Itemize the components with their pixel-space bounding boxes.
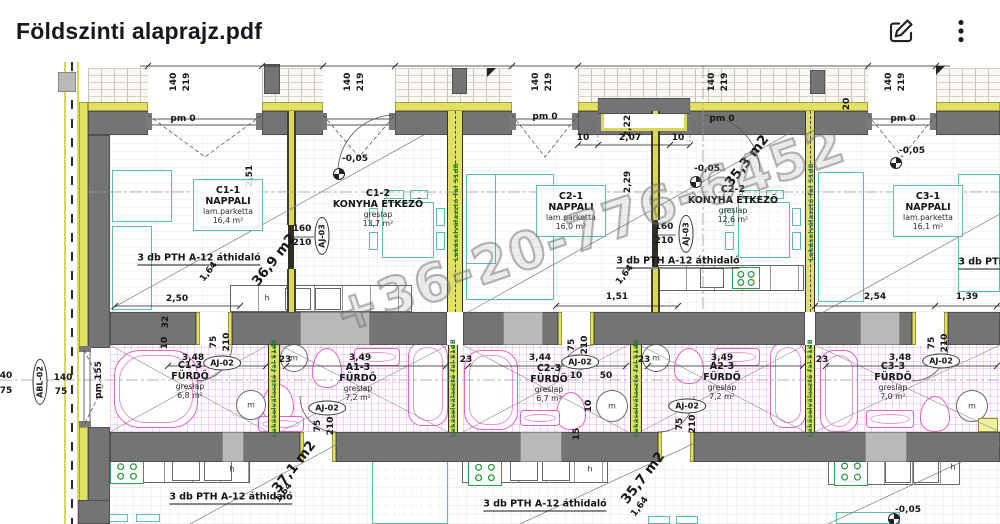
annotation-text: 2,07 xyxy=(619,133,641,143)
annotation-text: 160 xyxy=(655,222,674,232)
annotation-text: m xyxy=(652,354,660,363)
separating-wall-label: Lakáselválasztó fal 51dB xyxy=(806,339,814,437)
annotation-text: 140 xyxy=(343,73,353,92)
r-area: 12,6 m² xyxy=(688,215,778,224)
annotation-text: 10 xyxy=(570,371,583,381)
annotation-text: pm 0 xyxy=(532,112,557,122)
annotation-text: AJ-02 xyxy=(203,356,241,371)
r-id: C1-1 xyxy=(203,185,253,196)
level-marker-icon xyxy=(333,168,345,180)
annotation-text: 210 xyxy=(326,417,336,436)
annotation-text: 140 xyxy=(531,73,541,92)
annotation-text: h xyxy=(950,463,955,472)
more-options-button[interactable] xyxy=(944,12,978,50)
annotation-text: 2,54 xyxy=(864,292,886,302)
annotation-text: 50 xyxy=(600,371,613,381)
annotation-text: 10 xyxy=(577,133,590,143)
pdf-viewer-window: Földszinti alaprajz.pdf xyxy=(0,0,1000,524)
annotation-text: 219 xyxy=(544,73,554,92)
r-floor: lam.parketta xyxy=(903,213,953,222)
lintel-label: 3 db PTH A-12 áthidaló xyxy=(616,256,739,269)
room-label-c2-3: C2-3FÜRDŐgreslap6,7 m² xyxy=(530,363,567,403)
room-label-c1-1: C1-1NAPPALIlam.parketta16,4 m² xyxy=(193,179,263,231)
r-id: C1-2 xyxy=(333,188,423,199)
annotation-text: AJ-02 xyxy=(922,354,960,369)
annotation-text: 219 xyxy=(182,73,192,92)
annotation-text: 2,50 xyxy=(166,294,188,304)
annotation-text: 10 xyxy=(672,133,685,143)
annotation-text: 140 xyxy=(169,73,179,92)
r-floor: greslap xyxy=(333,210,423,219)
edit-button[interactable] xyxy=(882,12,920,50)
r-name: FÜRDŐ xyxy=(171,371,208,382)
annotation-text: 75 xyxy=(313,420,323,433)
room-label-c2-1: C2-1NAPPALIlam.parketta16,0 m² xyxy=(536,185,606,237)
r-floor: greslap xyxy=(339,384,376,393)
r-area: 6,7 m² xyxy=(530,394,567,403)
annotation-text: pm 0 xyxy=(170,114,195,124)
r-area: 16,1 m² xyxy=(903,222,953,231)
annotation-text: -0,05 xyxy=(342,154,368,164)
level-marker-icon xyxy=(888,513,900,524)
annotation-text: 219 xyxy=(897,73,907,92)
annotation-text: m xyxy=(247,401,255,410)
annotation-text: 219 xyxy=(720,73,730,92)
annotation-text: 20 xyxy=(842,98,852,111)
annotation-text: 75 xyxy=(675,418,685,431)
r-floor: greslap xyxy=(703,383,740,392)
annotation-text: m xyxy=(968,402,976,411)
annotation-text: 1,39 xyxy=(956,292,978,302)
annotation-text: 210 xyxy=(655,236,674,246)
room-label-c3-1: C3-1NAPPALIlam.parketta16,1 m² xyxy=(893,185,963,237)
annotation-text: 3,44 xyxy=(529,353,551,363)
annotation-text: 10 xyxy=(584,400,594,413)
annotation-text: 2,29 xyxy=(623,171,633,193)
r-id: C3-1 xyxy=(903,191,953,202)
r-floor: lam.parketta xyxy=(203,207,253,216)
annotation-text: 140 xyxy=(707,73,717,92)
annotation-text: -0,05 xyxy=(694,164,720,174)
r-floor: lam.parketta xyxy=(546,213,596,222)
r-name: NAPPALI xyxy=(203,196,253,207)
edit-icon xyxy=(886,16,916,46)
annotation-text: h xyxy=(264,294,269,303)
annotation-text: pm 0 xyxy=(890,114,915,124)
r-area: 7,2 m² xyxy=(339,393,376,402)
separating-wall-label: Lakáselválasztó fal 51dB xyxy=(807,163,815,261)
annotation-text: 210 xyxy=(688,415,698,434)
annotation-text: h xyxy=(229,465,234,474)
floor-plan-canvas[interactable]: C1-1NAPPALIlam.parketta16,4 m²C1-2KONYHA… xyxy=(0,62,1000,524)
annotation-text: h xyxy=(587,465,592,474)
annotation-text: 219 xyxy=(356,73,366,92)
r-id: A1-3 xyxy=(339,362,376,373)
lintel-label: 3 db PTH A-12 áthidaló xyxy=(137,253,260,266)
r-area: 6,8 m² xyxy=(171,391,208,400)
r-area: 7,0 m² xyxy=(874,392,911,401)
r-id: A2-3 xyxy=(703,361,740,372)
room-label-c1-2: C1-2KONYHA ÉTKEZŐgreslap13,7 m² xyxy=(333,188,423,228)
r-name: NAPPALI xyxy=(546,202,596,213)
annotation-text: 75 xyxy=(55,387,68,397)
lintel-label: 3 db PTH A-12 áthidaló xyxy=(958,257,1000,270)
annotation-text: 23 xyxy=(816,355,829,365)
r-id: C2-2 xyxy=(688,184,778,195)
room-label-c3-3: C3-3FÜRDŐgreslap7,0 m² xyxy=(874,361,911,401)
app-header: Földszinti alaprajz.pdf xyxy=(0,0,1000,62)
r-name: FÜRDŐ xyxy=(530,374,567,385)
annotation-text: ABL-02 xyxy=(33,359,48,405)
r-name: KONYHA ÉTKEZŐ xyxy=(688,195,778,206)
r-area: 16,4 m² xyxy=(203,216,253,225)
annotation-text: AJ-03 xyxy=(315,217,330,255)
level-marker-icon xyxy=(890,157,902,169)
lintel-label: 3 db PTH A-12 áthidaló xyxy=(483,499,606,512)
lintel-label: 3 db PTH A-12 áthidaló xyxy=(169,492,292,505)
r-area: 16,0 m² xyxy=(546,222,596,231)
separating-wall-label: Lakáselválasztó fal 51dB xyxy=(452,163,460,261)
r-id: C2-3 xyxy=(530,363,567,374)
annotation-text: 32 xyxy=(161,316,171,329)
annotation-text: 210 xyxy=(222,333,232,352)
r-floor: greslap xyxy=(171,382,208,391)
room-label-c2-2: C2-2KONYHA ÉTKEZŐgreslap12,6 m² xyxy=(688,184,778,224)
annotation-text: 10 xyxy=(160,337,170,350)
annotation-text: m xyxy=(608,402,616,411)
r-floor: greslap xyxy=(530,385,567,394)
annotation-text: 210 xyxy=(940,334,950,353)
r-area: 13,7 m² xyxy=(333,219,423,228)
annotation-text: pm 0 xyxy=(709,114,734,124)
room-label-a1-3: A1-3FÜRDŐgreslap7,2 m² xyxy=(339,362,376,402)
separating-wall-label: Lakáselválasztó fal 51dB xyxy=(449,339,457,437)
document-title: Földszinti alaprajz.pdf xyxy=(16,18,262,45)
annotation-text: 40 xyxy=(0,371,12,381)
annotation-text: AJ-02 xyxy=(668,399,706,414)
kebab-menu-icon xyxy=(948,16,974,46)
annotation-text: 23 xyxy=(460,355,473,365)
annotation-text: -0,05 xyxy=(895,505,921,515)
r-area: 7,2 m² xyxy=(703,392,740,401)
annotation-text: 75 xyxy=(927,337,937,350)
annotation-text: -0,05 xyxy=(899,146,925,156)
r-name: KONYHA ÉTKEZŐ xyxy=(333,199,423,210)
annotation-text: 1,51 xyxy=(606,292,628,302)
annotation-text: m xyxy=(290,354,298,363)
room-label-c1-3: C1-3FÜRDŐgreslap6,8 m² xyxy=(171,360,208,400)
header-actions xyxy=(882,12,1000,50)
r-floor: greslap xyxy=(688,206,778,215)
r-id: C1-3 xyxy=(171,360,208,371)
r-name: FÜRDŐ xyxy=(874,372,911,383)
annotation-text: 15 xyxy=(572,428,582,441)
annotation-text: 75 xyxy=(0,386,12,396)
r-name: NAPPALI xyxy=(903,202,953,213)
annotation-text: 75 xyxy=(209,336,219,349)
r-floor: greslap xyxy=(874,383,911,392)
annotation-text: 75 xyxy=(567,339,577,352)
separating-wall-label: Lakáselválasztó fal 51dB xyxy=(270,339,278,437)
annotation-text: 140 xyxy=(54,373,73,383)
r-id: C2-1 xyxy=(546,191,596,202)
annotation-text: 210 xyxy=(580,336,590,355)
annotation-text: 140 xyxy=(884,73,894,92)
annotation-text: AJ-02 xyxy=(308,401,346,416)
room-label-a2-3: A2-3FÜRDŐgreslap7,2 m² xyxy=(703,361,740,401)
annotation-text: 160 xyxy=(293,224,312,234)
r-id: C3-3 xyxy=(874,361,911,372)
annotation-text: pm 155 xyxy=(94,361,104,399)
r-name: FÜRDŐ xyxy=(339,373,376,384)
separating-wall-label: Lakáselválasztó fal 51dB xyxy=(632,339,640,437)
level-markers xyxy=(0,62,1000,524)
r-name: FÜRDŐ xyxy=(703,372,740,383)
